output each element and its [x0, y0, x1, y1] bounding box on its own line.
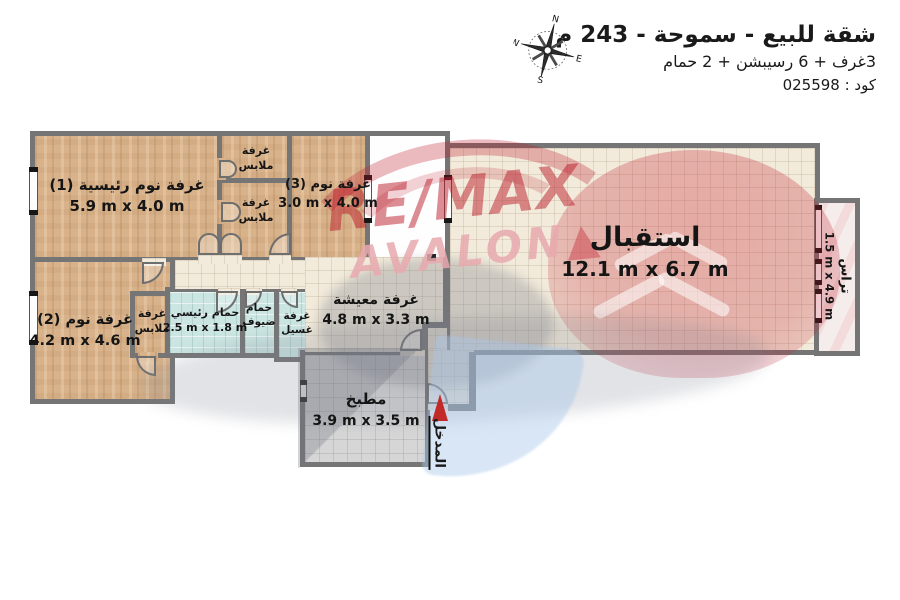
label-laundry: غرفة غسيل	[281, 309, 313, 337]
label-bath-guest: حمام ضيوف	[242, 301, 275, 329]
header: شقة للبيع - سموحة - 243 م 3غرف + 6 رسيبش…	[555, 20, 876, 97]
bath-guest-line1: حمام	[242, 301, 275, 315]
door-bedroom1-right	[220, 233, 242, 255]
bedroom1-name: غرفة نوم رئيسية (1)	[49, 175, 204, 196]
wall-lobby-right	[469, 352, 476, 411]
closet-b-line1: غرفة	[239, 195, 274, 210]
window-reception-left	[444, 176, 452, 222]
door-closet-a	[219, 160, 237, 178]
page-subtitle: 3غرف + 6 رسيبشن + 2 حمام	[555, 50, 876, 74]
label-closet-a: غرفة ملابس	[239, 143, 274, 173]
window-kitchen	[300, 381, 307, 401]
label-living: غرفة معيشة 4.8 m x 3.3 m	[322, 290, 429, 330]
door-bedroom1-left	[198, 233, 220, 255]
bedroom3-dims: 3.0 m x 4.0 m	[278, 194, 378, 213]
compass-n: N	[551, 14, 560, 25]
living-name: غرفة معيشة	[322, 290, 429, 310]
bedroom1-dims: 5.9 m x 4.0 m	[49, 196, 204, 217]
label-bedroom2: غرفة نوم (2) 4.2 m x 4.6 m	[29, 310, 140, 352]
wall-living-right	[443, 257, 449, 327]
shaft-access-marker	[427, 254, 436, 261]
closet-a-line2: ملابس	[239, 158, 274, 173]
bedroom3-name: غرفة نوم (3)	[278, 175, 378, 194]
terrace-dims: 1.5 m x 4.9 m	[822, 232, 837, 320]
opening-bedroom3	[269, 255, 291, 264]
room-hallway	[175, 260, 310, 289]
laundry-line2: غسيل	[281, 323, 313, 337]
bath-master-name: حمام رئيسي	[163, 305, 247, 320]
terrace-name: تراس	[837, 232, 853, 320]
label-reception: استقبال 12.1 m x 6.7 m	[561, 221, 728, 283]
closet-b-line2: ملابس	[239, 210, 274, 225]
kitchen-dims: 3.9 m x 3.5 m	[312, 410, 419, 432]
kitchen-name: مطبخ	[312, 388, 419, 410]
label-entrance: المدخل	[429, 416, 448, 470]
living-dims: 4.8 m x 3.3 m	[322, 310, 429, 330]
window-bedroom1	[29, 168, 38, 214]
label-bath-master: حمام رئيسي 2.5 m x 1.8 m	[163, 305, 247, 335]
compass-s: S	[536, 75, 544, 86]
reception-name: استقبال	[561, 221, 728, 255]
label-kitchen: مطبخ 3.9 m x 3.5 m	[312, 388, 419, 432]
label-closet-b: غرفة ملابس	[239, 195, 274, 225]
label-bedroom1: غرفة نوم رئيسية (1) 5.9 m x 4.0 m	[49, 175, 204, 217]
compass-w: W	[509, 38, 520, 50]
bath-guest-line2: ضيوف	[242, 315, 275, 329]
laundry-line1: غرفة	[281, 309, 313, 323]
closet-a-line1: غرفة	[239, 143, 274, 158]
listing-code: كود : 025598	[555, 74, 876, 97]
opening-bedroom1	[198, 255, 242, 264]
label-terrace: تراس 1.5 m x 4.9 m	[822, 232, 853, 320]
floorplan-page: { "header": { "title": "شقة للبيع - سموح…	[0, 0, 900, 600]
reception-dims: 12.1 m x 6.7 m	[561, 255, 728, 283]
page-title: شقة للبيع - سموحة - 243 م	[555, 20, 876, 50]
label-bedroom3: غرفة نوم (3) 3.0 m x 4.0 m	[278, 175, 378, 213]
bedroom2-dims: 4.2 m x 4.6 m	[29, 331, 140, 352]
bath-master-dims: 2.5 m x 1.8 m	[163, 320, 247, 335]
bedroom2-name: غرفة نوم (2)	[29, 310, 140, 331]
